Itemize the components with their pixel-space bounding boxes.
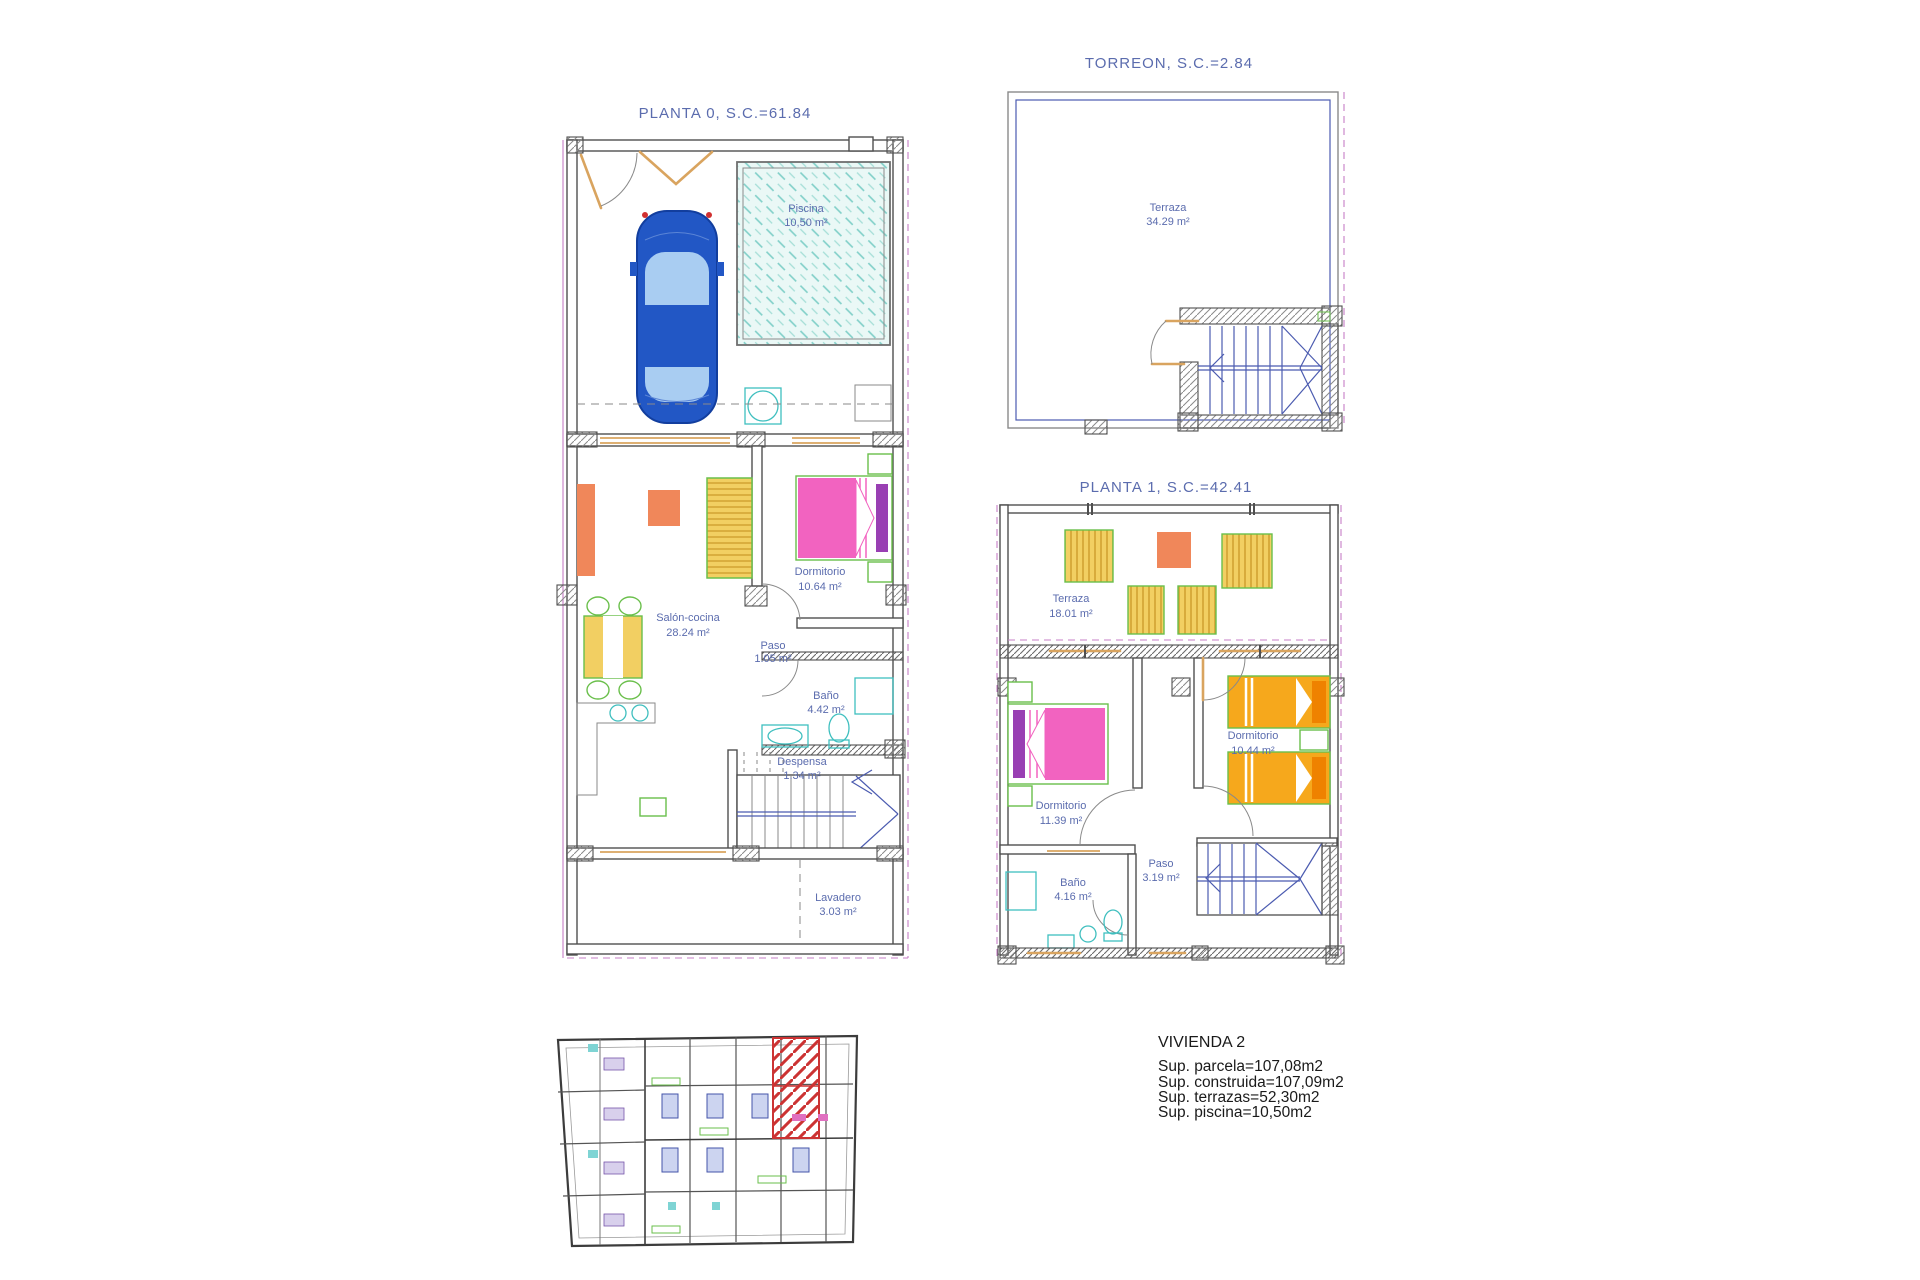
unit-stair-mark [662,1094,678,1118]
bed-pillow [1312,757,1326,799]
column [567,432,597,447]
wall-left [567,140,577,955]
unit-fixture-mark [588,1044,598,1052]
site-plan [558,1036,857,1246]
torreon-inner-wall [1016,100,1330,420]
terrace-table [1157,532,1191,568]
wall-bottom [567,944,903,954]
stair-break-line [1300,326,1322,368]
sink [1048,935,1074,948]
sofa [707,478,752,578]
planter-box [855,385,891,421]
pool: Piscina 10,50 m² [737,162,890,345]
car-roof [645,305,709,367]
nightstand [1008,682,1032,702]
stair-wall [1180,415,1330,428]
column [737,432,765,447]
room-label-torreon-terraza-area: 34.29 m² [1146,216,1190,228]
column [1192,946,1208,960]
room-label-dormitorio-name: Dormitorio [795,566,846,578]
unit-stair-mark [707,1094,723,1118]
column [887,137,903,153]
summary-block: VIVIENDA 2 Sup. parcela=107,08m2 Sup. co… [1158,1034,1344,1121]
bedroom-bed [796,454,892,582]
room-label-bano-name: Baño [813,690,839,702]
bidet [1080,926,1096,942]
floorplan-sheet: PLANTA 0, S.C.=61.84 Piscina 10,50 m² [0,0,1920,1280]
car-taillight [706,212,712,218]
nightstand [1008,786,1032,806]
wall-left [1000,505,1008,955]
unit-stair-mark [604,1058,624,1070]
door-swing-arc [601,153,637,206]
stair-outline [737,775,900,853]
bedroom1-bed [1008,682,1108,806]
column [745,586,767,606]
armchair [1065,530,1113,582]
living-room-furniture [577,478,752,816]
wall-closet-west [1133,658,1142,788]
torreon-title: TORREON, S.C.=2.84 [1085,55,1253,72]
door-swing-arc [1080,790,1135,845]
room-label-paso1-name: Paso [1148,858,1173,870]
column [886,585,906,605]
column [1178,413,1198,431]
outdoor-shower-base [745,388,781,424]
column [1322,413,1342,431]
toilet [1104,910,1122,934]
dining-table-runner [603,616,623,678]
room-label-despensa-area: 1.34 m² [783,770,821,782]
entry-door-leaf [581,155,601,208]
car [630,211,724,423]
stair-wall [1180,308,1330,324]
sink-basin [768,728,802,744]
room-label-dormitorio-area: 10.64 m² [798,581,842,593]
pool-water [737,162,890,345]
chair [587,681,609,699]
room-label-lavadero-name: Lavadero [815,892,861,904]
nightstand [1300,730,1328,750]
stair-break-line [1282,326,1322,368]
room-label-terraza-name: Terraza [1053,593,1091,605]
column [1172,678,1190,696]
shower [855,678,893,714]
unit-stair-mark [707,1148,723,1172]
room-label-lavadero-area: 3.03 m² [819,906,857,918]
chair [587,597,609,615]
armchair [1222,534,1272,588]
chair [619,597,641,615]
floorplan-drawing: PLANTA 0, S.C.=61.84 Piscina 10,50 m² [0,0,1920,1280]
wall-salon-dormitorio [752,446,762,586]
torreon-plan: TORREON, S.C.=2.84 Terraza 34.29 m² [1008,55,1344,434]
column [885,740,905,758]
room-label-paso-name: Paso [760,640,785,652]
unit-bed-mark [792,1114,806,1121]
wall-mid [567,434,903,446]
door-swing-arc [762,660,798,696]
wall-notch [1085,420,1107,434]
unit-fixture-mark [712,1202,720,1210]
door-swing-arc [762,584,800,620]
column [998,946,1016,964]
column [567,137,583,153]
column [557,585,577,605]
wall-closet-east [1194,658,1203,788]
unit-stair-mark [604,1108,624,1120]
door-swing-arc [1093,900,1128,935]
room-label-despensa-name: Despensa [777,756,827,768]
room-label-torreon-terraza-name: Terraza [1150,202,1188,214]
room-label-piscina-area: 10,50 m² [784,217,828,229]
wall-notch [849,137,873,151]
door-swing-arc [1151,321,1166,364]
room-label-piscina-name: Piscina [788,203,824,215]
planta0-title: PLANTA 0, S.C.=61.84 [639,105,812,122]
appliance [640,798,666,816]
stair-break-line [1282,368,1322,414]
kitchen-sink [632,705,648,721]
chair [619,681,641,699]
nightstand [868,562,892,582]
room-label-salon-area: 28.24 m² [666,627,710,639]
stair-wall [1322,324,1338,415]
room-label-salon-name: Salón-cocina [656,612,720,624]
room-label-dormitorio2-name: Dormitorio [1228,730,1279,742]
planta1-plan: PLANTA 1, S.C.=42.41 Terraza 18.01 m² [997,479,1344,964]
unit-stair-mark [752,1094,768,1118]
towel-radiator [1006,872,1036,910]
room-label-paso1-area: 3.19 m² [1142,872,1180,884]
room-label-bano1-area: 4.16 m² [1054,891,1092,903]
planta1-staircase [1197,838,1338,915]
column [1322,306,1342,326]
car-mirror [630,262,637,276]
chair [1128,586,1164,634]
unit-fixture-mark [668,1202,676,1210]
unit-stair-mark [793,1148,809,1172]
bed-pillow [1013,710,1025,778]
chair [1178,586,1216,634]
torreon-staircase [1151,306,1342,431]
nightstand [868,454,892,474]
planta1-title: PLANTA 1, S.C.=42.41 [1080,479,1253,496]
sideboard [577,484,595,576]
column [1326,946,1344,964]
wall-top [1000,505,1338,513]
unit-stair-mark [662,1148,678,1172]
room-label-bano-area: 4.42 m² [807,704,845,716]
unit-stair-mark [604,1214,624,1226]
room-label-paso-area: 1.05 m² [754,653,792,665]
outdoor-shower-drain [748,391,778,421]
summary-line-parcela: Sup. parcela=107,08m2 [1158,1058,1323,1075]
staircase [737,770,900,853]
bed-pillow [876,484,888,552]
column [733,846,759,861]
stair-wall [1322,843,1338,915]
bed-mattress [1045,708,1105,780]
toilet [829,714,849,742]
summary-line-piscina: Sup. piscina=10,50m2 [1158,1104,1312,1121]
kitchen-sink [610,705,626,721]
unit-bed-mark [818,1114,828,1121]
kitchen-counter [577,703,655,795]
room-label-dormitorio1-area: 11.39 m² [1040,815,1083,827]
wall-stair-west [728,750,737,855]
terrace-furniture [1065,530,1272,634]
unit-fixture-mark [588,1150,598,1158]
highlighted-unit-vivienda2 [773,1038,819,1138]
unit-stair-mark [604,1162,624,1174]
room-label-bano1-name: Baño [1060,877,1086,889]
stair-break-line [1300,368,1322,414]
room-label-dormitorio1-name: Dormitorio [1036,800,1087,812]
column [873,432,903,447]
column [567,846,593,861]
bed-pillow [1312,681,1326,723]
room-label-dormitorio2-area: 10.44 m² [1231,745,1275,757]
car-mirror [717,262,724,276]
planta0-plan: PLANTA 0, S.C.=61.84 Piscina 10,50 m² [557,105,908,958]
wall-dormitorio-south [797,618,903,628]
summary-title: VIVIENDA 2 [1158,1034,1245,1051]
stair-outline [1197,843,1322,915]
car-taillight [642,212,648,218]
wall-bano-north [1000,845,1135,854]
torreon-outer-wall [1008,92,1338,428]
column [877,846,903,861]
room-label-terraza-area: 18.01 m² [1049,608,1093,620]
bed-mattress [798,478,856,558]
coffee-table [648,490,680,526]
wall-bano-east [1128,854,1136,955]
entry-gate-door [640,152,712,184]
